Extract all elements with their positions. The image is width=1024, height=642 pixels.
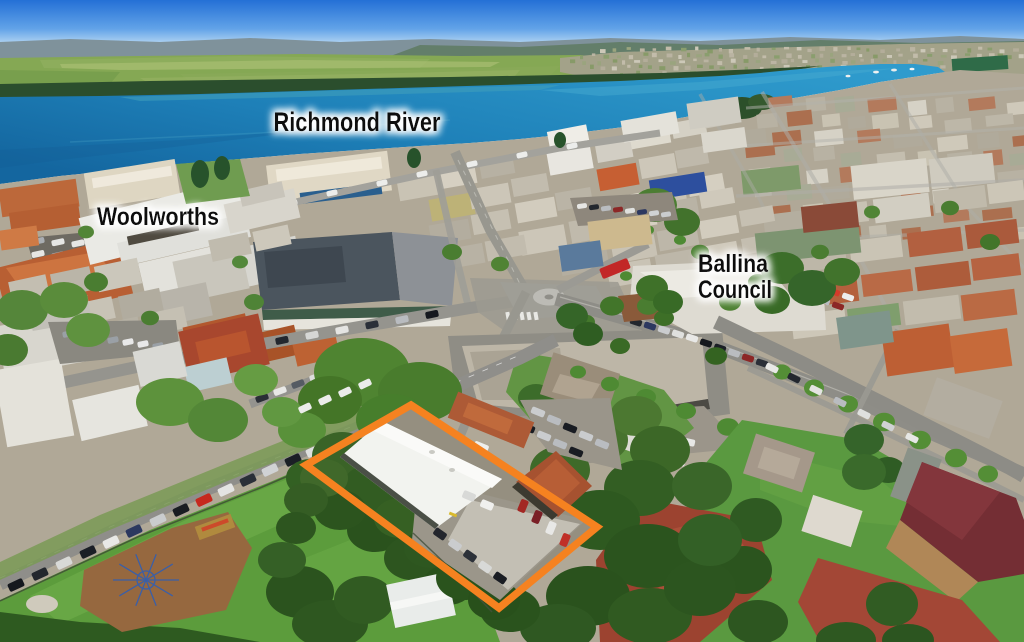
svg-text:Woolworths: Woolworths [97, 203, 219, 231]
svg-text:Richmond River: Richmond River [274, 107, 441, 137]
svg-text:Ballina: Ballina [698, 250, 769, 278]
svg-text:Council: Council [698, 276, 772, 304]
